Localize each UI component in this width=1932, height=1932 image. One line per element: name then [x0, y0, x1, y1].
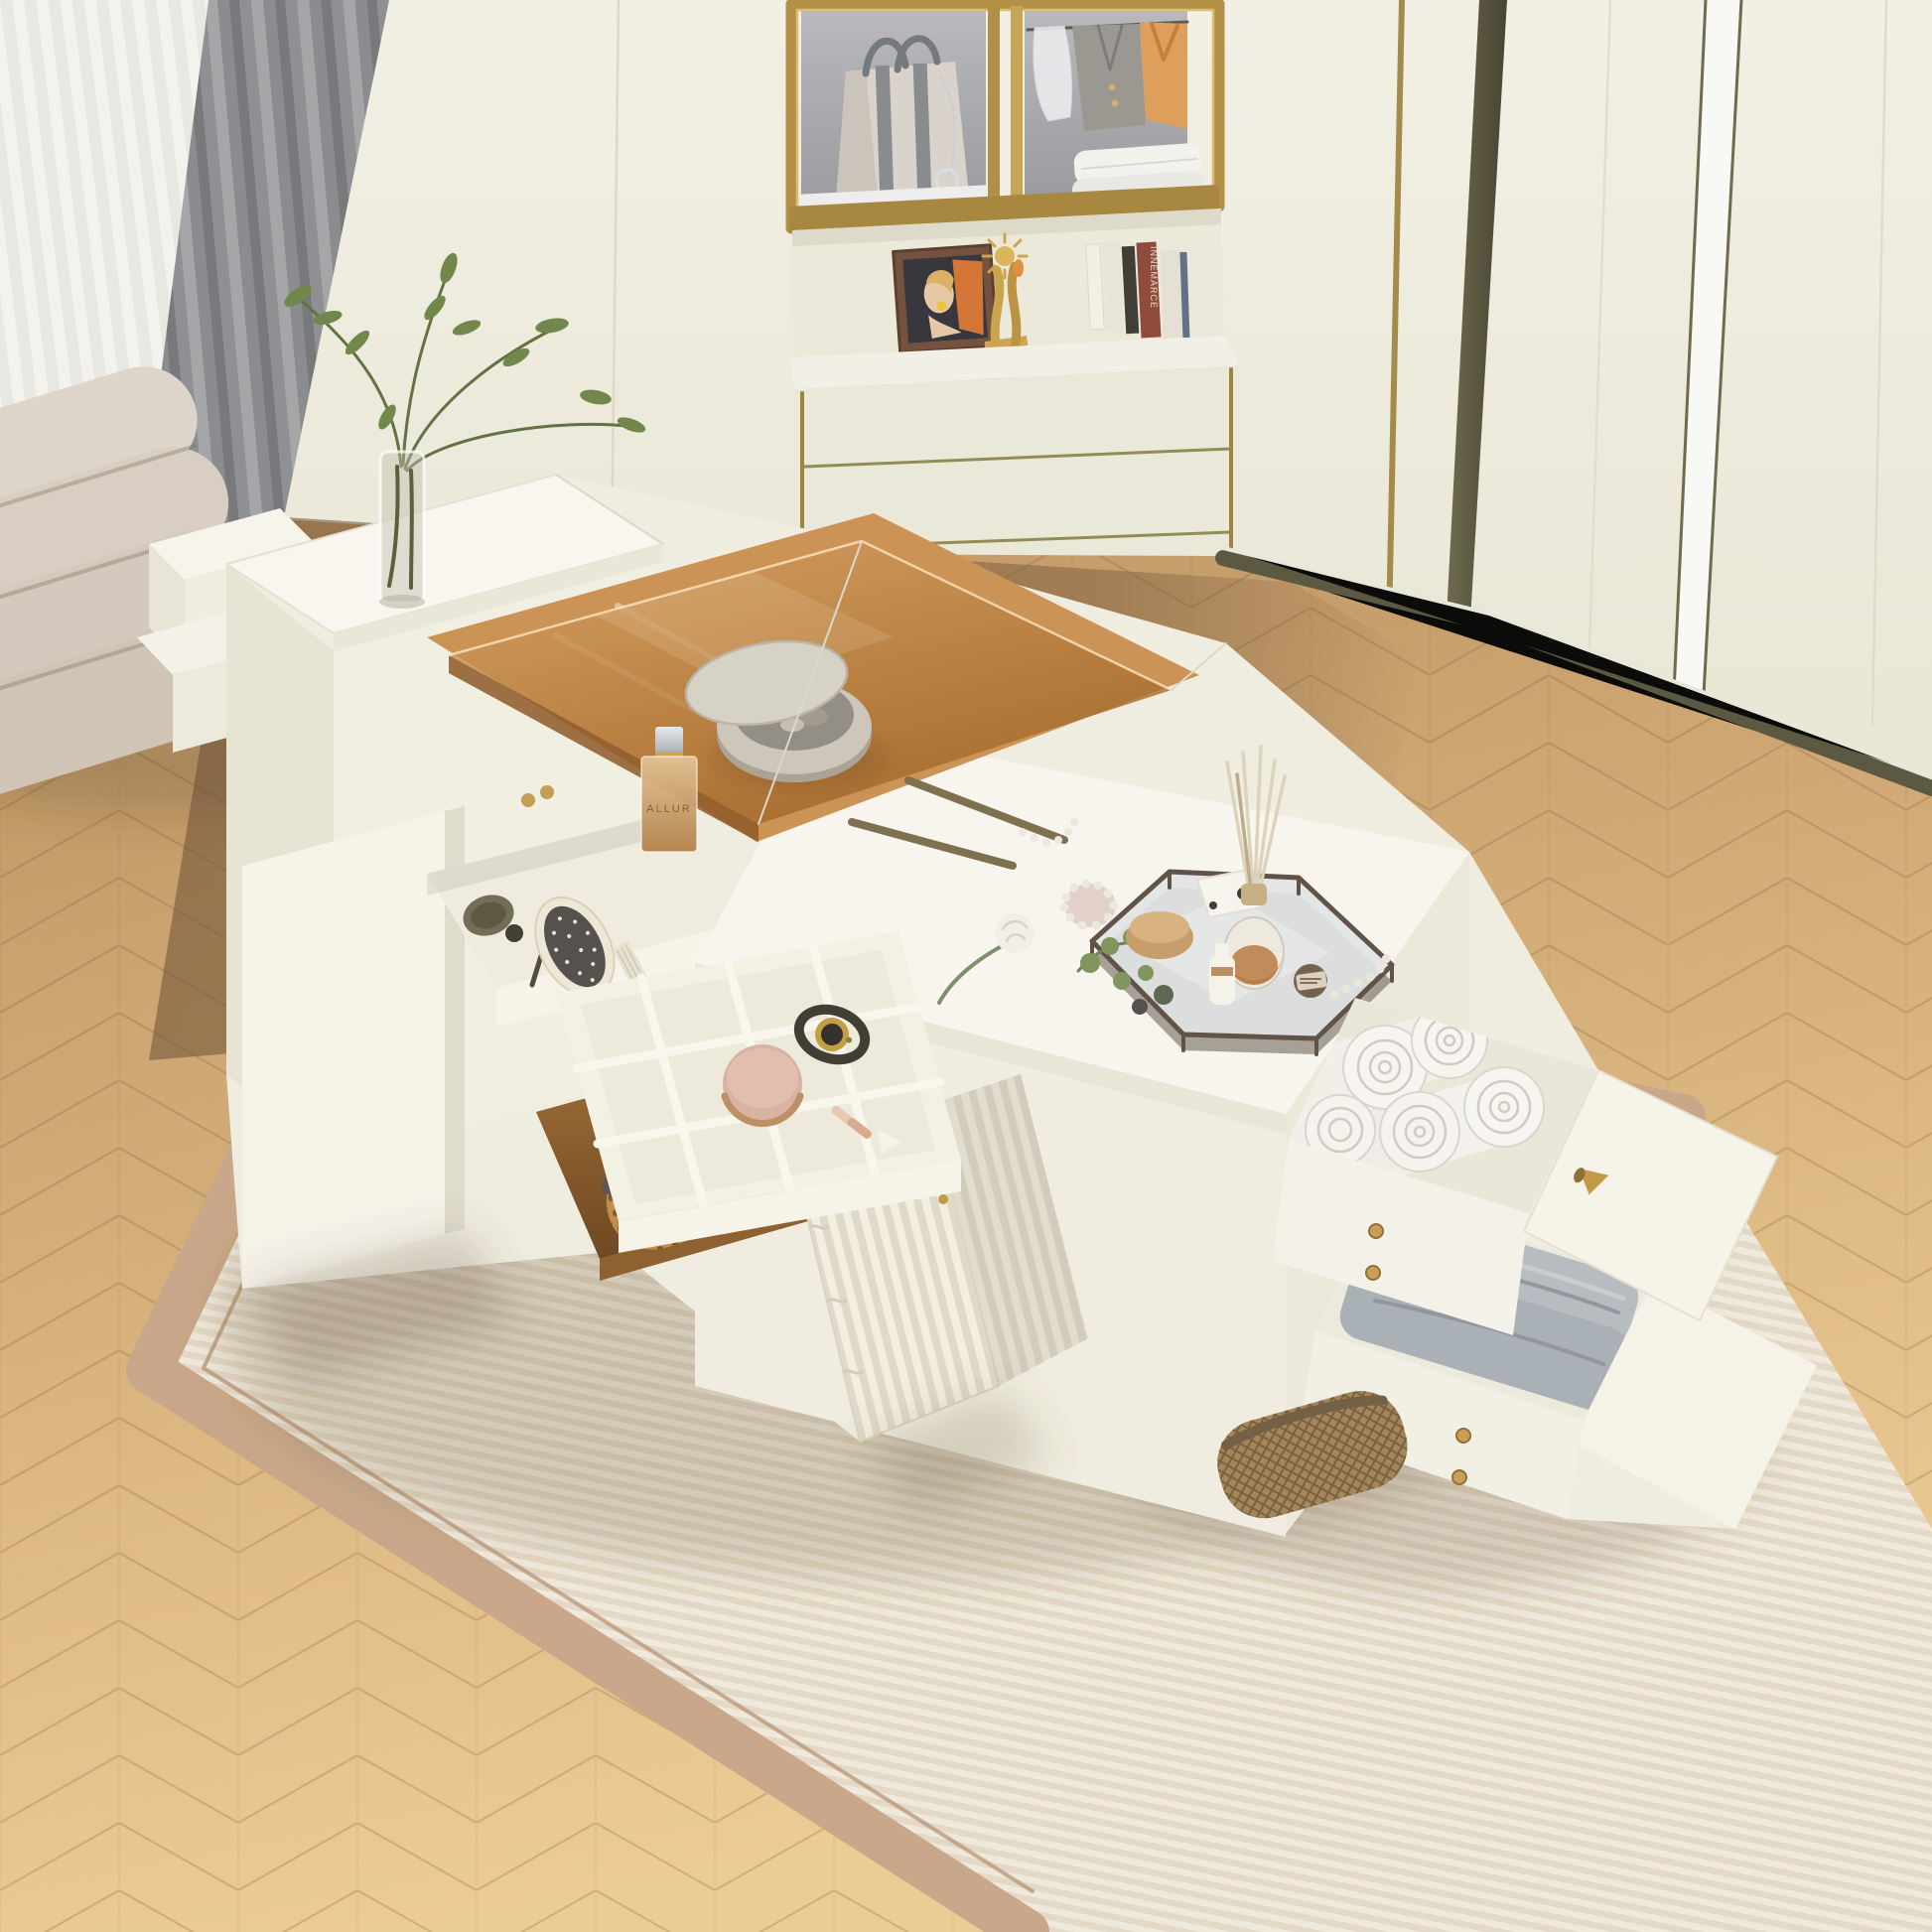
bedroom-scene: INNEMARCE	[0, 0, 1932, 1932]
scene-canvas: INNEMARCE	[0, 0, 1932, 1932]
light-overlay	[0, 0, 1932, 1932]
